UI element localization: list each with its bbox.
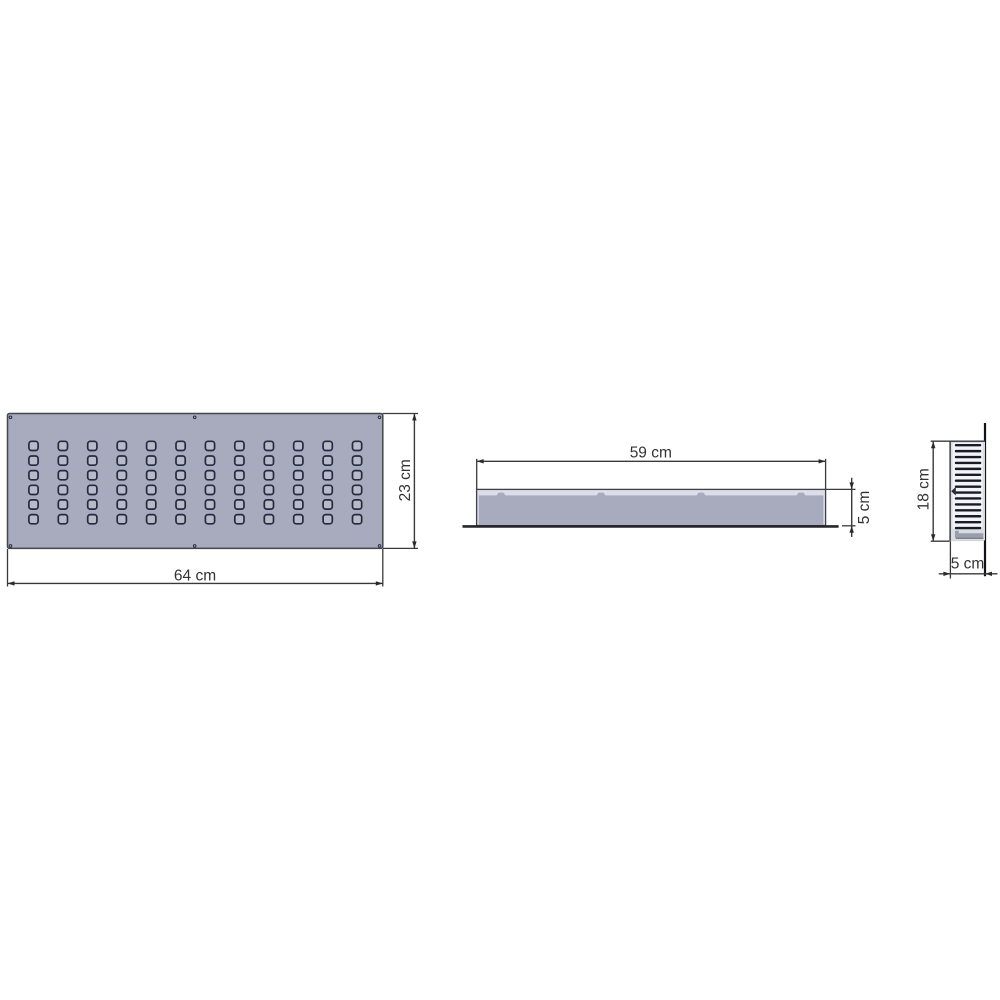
- svg-text:23 cm: 23 cm: [397, 459, 414, 501]
- svg-text:59 cm: 59 cm: [630, 444, 672, 461]
- svg-text:64 cm: 64 cm: [174, 568, 216, 585]
- svg-text:5 cm: 5 cm: [856, 491, 873, 525]
- svg-text:18 cm: 18 cm: [916, 468, 933, 510]
- svg-text:5 cm: 5 cm: [951, 555, 985, 572]
